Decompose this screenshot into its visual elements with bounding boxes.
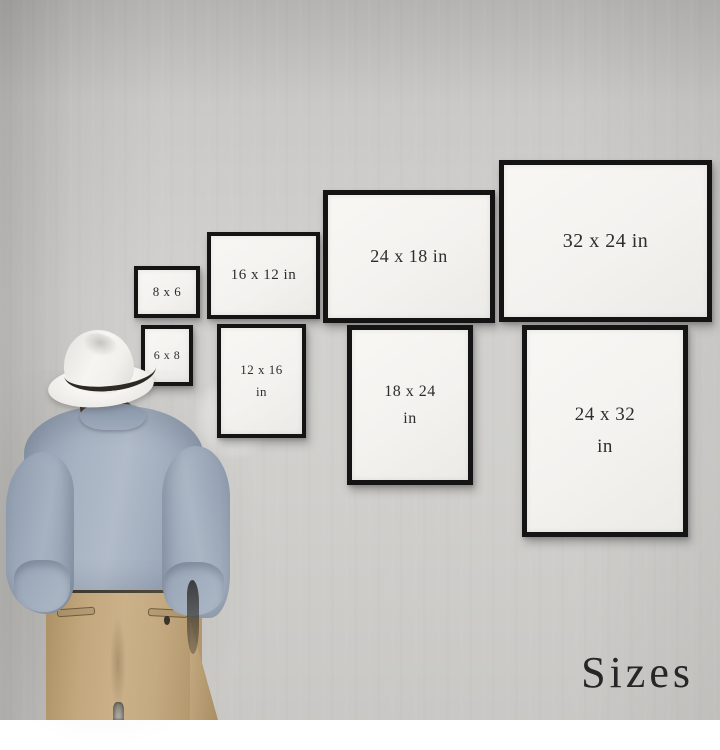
shirt-collar: [80, 404, 146, 430]
pants-crease: [110, 616, 126, 710]
shirt-cuff-left: [14, 560, 70, 612]
man-figure: [0, 0, 720, 720]
arm-shadow: [187, 580, 199, 654]
sizes-caption: Sizes: [581, 647, 694, 698]
size-guide-image: 8 x 6 16 x 12 in 24 x 18 in 32 x 24 in: [0, 0, 720, 720]
pocket-button: [164, 616, 170, 625]
leg-gap: [113, 702, 124, 720]
